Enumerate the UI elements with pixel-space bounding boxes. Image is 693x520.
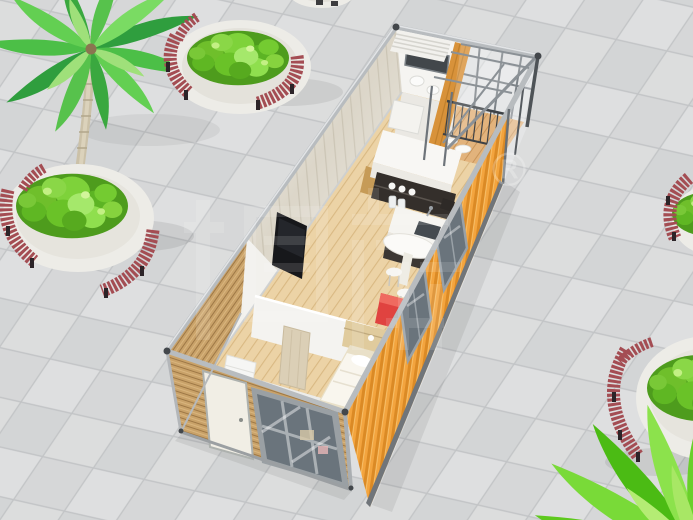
plaza-render-scene: ® — [0, 0, 693, 520]
faucet — [429, 206, 433, 210]
shrubs — [187, 31, 289, 86]
entry-door — [203, 371, 253, 459]
shrubs — [16, 174, 128, 238]
registered-trademark-watermark: ® — [486, 143, 532, 197]
door-handle — [239, 418, 243, 422]
bedroom-door-leaf — [279, 326, 310, 390]
